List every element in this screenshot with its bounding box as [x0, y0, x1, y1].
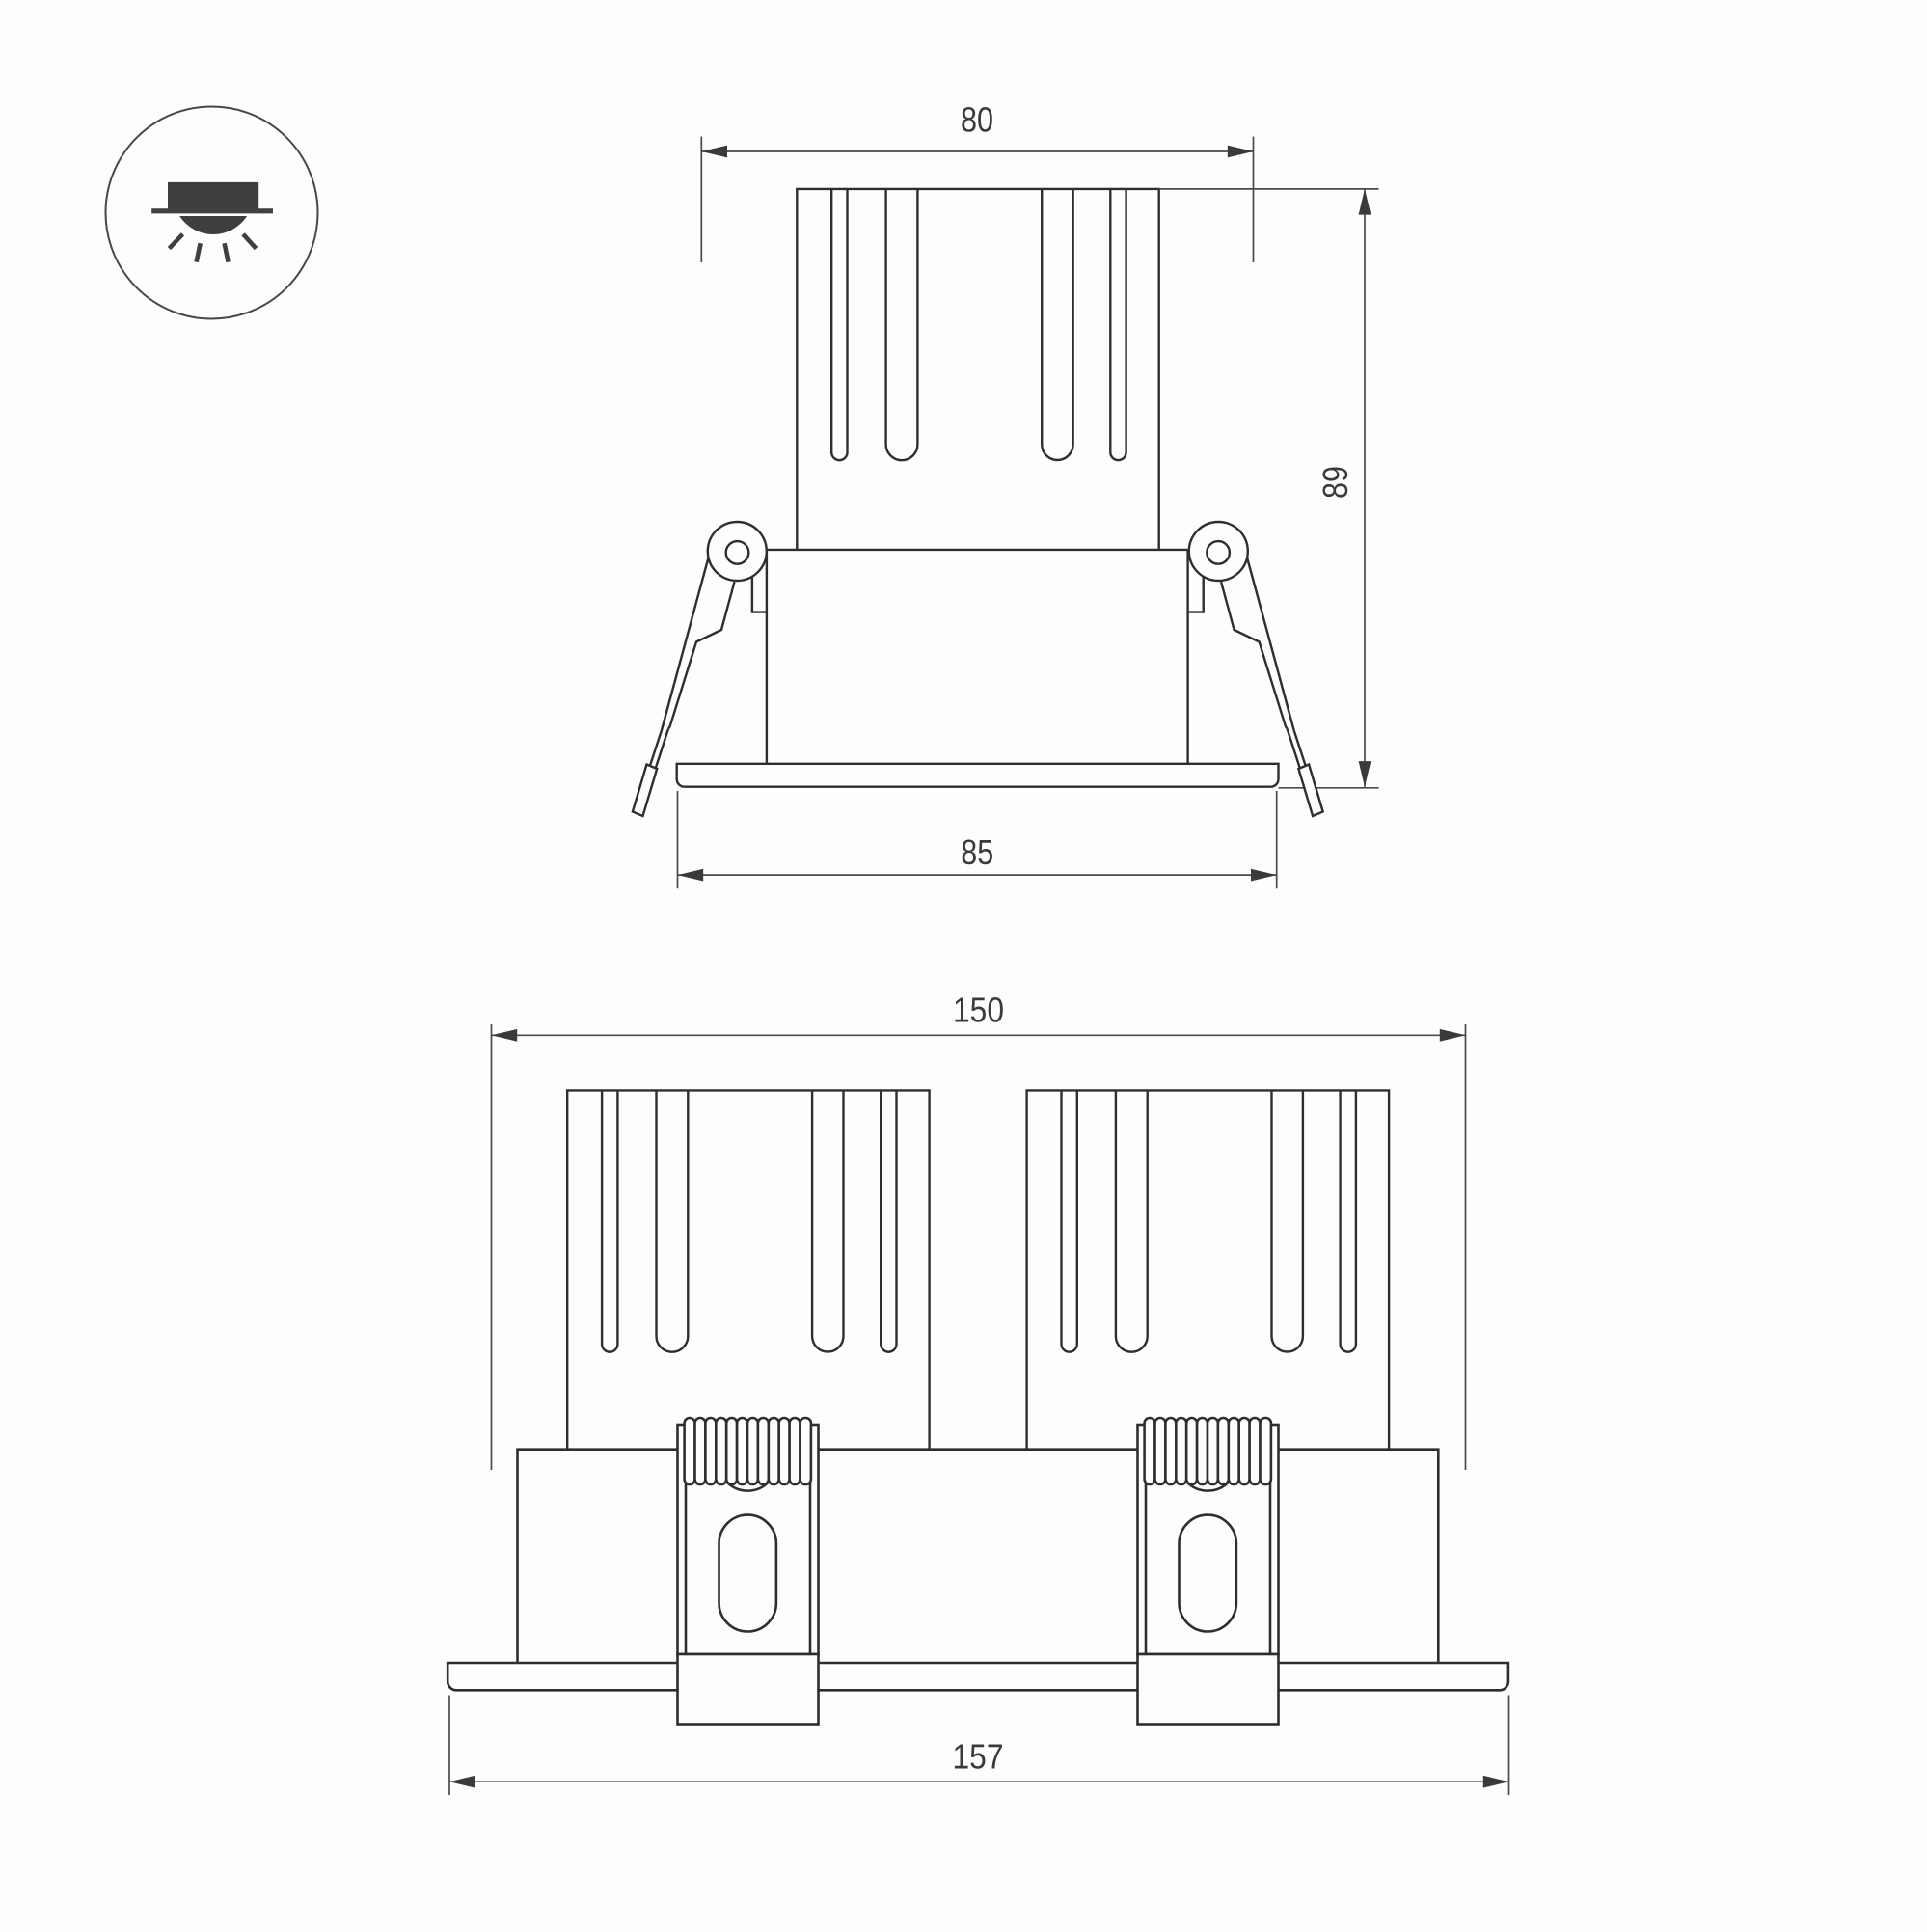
svg-text:80: 80	[961, 100, 993, 140]
svg-text:150: 150	[953, 990, 1004, 1029]
svg-text:89: 89	[1316, 466, 1355, 499]
svg-text:157: 157	[953, 1737, 1004, 1777]
svg-text:85: 85	[961, 832, 993, 872]
